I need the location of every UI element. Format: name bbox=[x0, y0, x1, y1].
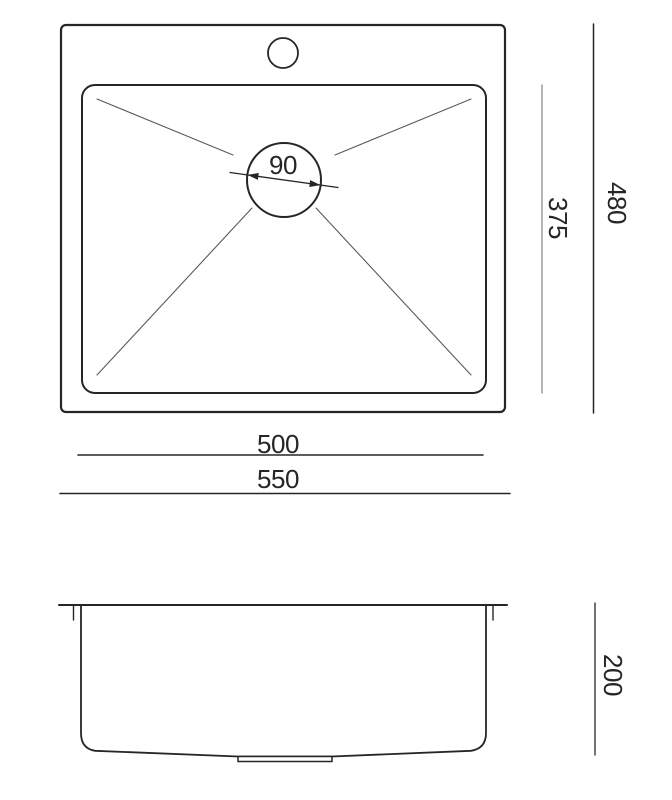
drain-fitting bbox=[238, 757, 332, 762]
slope-line-bottom-right bbox=[316, 208, 471, 375]
bowl-profile bbox=[81, 605, 486, 757]
slope-line-top-right bbox=[335, 99, 471, 155]
technical-drawing-svg: 90 375 480 500 550 200 bbox=[0, 0, 672, 800]
label-bowl-height: 200 bbox=[598, 654, 628, 696]
faucet-hole-circle bbox=[268, 38, 298, 68]
dimension-labels: 90 375 480 500 550 200 bbox=[257, 150, 632, 696]
bowl-inner-outline bbox=[82, 85, 486, 393]
top-view bbox=[61, 25, 505, 412]
slope-line-top-left bbox=[97, 99, 233, 155]
label-inner-width: 500 bbox=[257, 429, 299, 459]
bowl-corner-slope-lines bbox=[97, 99, 471, 375]
sink-technical-drawing: 90 375 480 500 550 200 bbox=[0, 0, 672, 800]
label-inner-depth: 375 bbox=[543, 197, 573, 239]
slope-line-bottom-left bbox=[97, 208, 252, 375]
side-view bbox=[59, 605, 507, 762]
label-drain-diameter: 90 bbox=[269, 150, 297, 180]
dimension-lines bbox=[60, 24, 595, 755]
label-outer-width: 550 bbox=[257, 464, 299, 494]
label-outer-depth: 480 bbox=[602, 182, 632, 224]
sink-outer-outline bbox=[61, 25, 505, 412]
